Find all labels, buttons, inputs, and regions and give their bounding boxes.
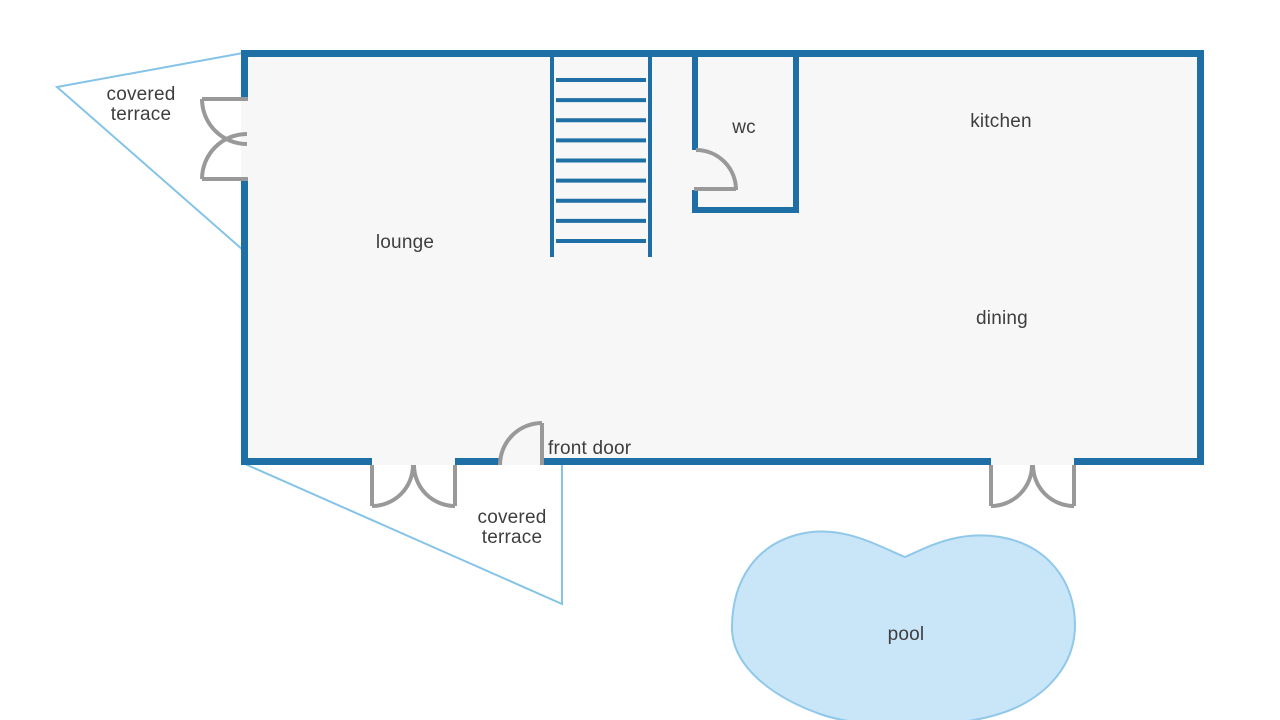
terrace-door-south [372, 465, 455, 506]
door-swing-arc [414, 465, 455, 506]
label-dining: dining [976, 308, 1028, 329]
door-swing-arc [202, 99, 247, 144]
stair-rail-left [550, 57, 554, 257]
wall-east [1197, 50, 1204, 465]
wall-south-seg4 [1074, 458, 1204, 465]
wc-wall-south [692, 207, 799, 213]
door-swing-arc [372, 465, 413, 506]
label-lounge: lounge [376, 232, 434, 253]
wall-south-seg3 [543, 458, 991, 465]
stair-rail-right [648, 57, 652, 257]
wall-west-upper [241, 50, 248, 97]
terrace-nw-outline [57, 53, 243, 250]
door-swing-arc [1033, 465, 1074, 506]
door-swing-arc [991, 465, 1032, 506]
floor-plan: covered terrace lounge wc kitchen dining… [0, 0, 1280, 720]
wc-wall-west-upper [692, 57, 698, 150]
label-terrace-nw-line2: terrace [111, 104, 172, 125]
wall-south-seg1 [241, 458, 372, 465]
label-terrace-nw-line1: covered [107, 84, 176, 105]
wc-wall-east [793, 57, 799, 213]
house-floor [241, 50, 1204, 465]
floor-plan-canvas: covered terrace lounge wc kitchen dining… [0, 0, 1280, 720]
label-wc: wc [731, 117, 756, 138]
wall-west-lower [241, 180, 248, 465]
label-pool: pool [888, 624, 925, 645]
wall-south-seg2 [455, 458, 500, 465]
wall-north [241, 50, 1204, 57]
door-swing-arc [202, 134, 247, 179]
label-kitchen: kitchen [970, 111, 1032, 132]
garden-door-south [991, 465, 1074, 506]
label-terrace-s-line2: terrace [482, 527, 543, 548]
label-front-door: front door [548, 438, 632, 459]
label-terrace-s-line1: covered [478, 507, 547, 528]
